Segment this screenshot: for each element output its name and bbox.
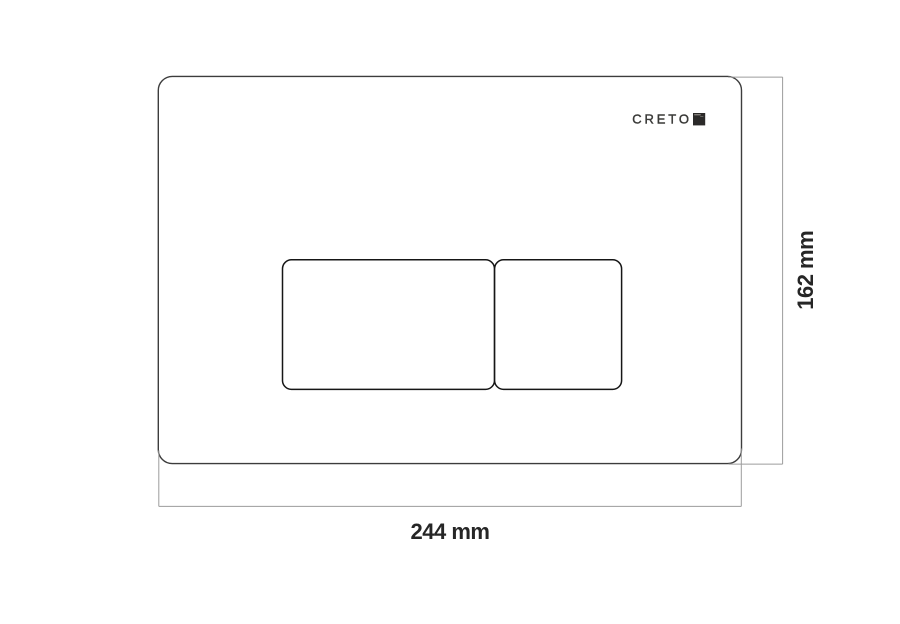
svg-text:CRETO: CRETO	[632, 112, 692, 127]
svg-text:244 mm: 244 mm	[411, 519, 490, 544]
svg-text:162 mm: 162 mm	[793, 231, 818, 310]
